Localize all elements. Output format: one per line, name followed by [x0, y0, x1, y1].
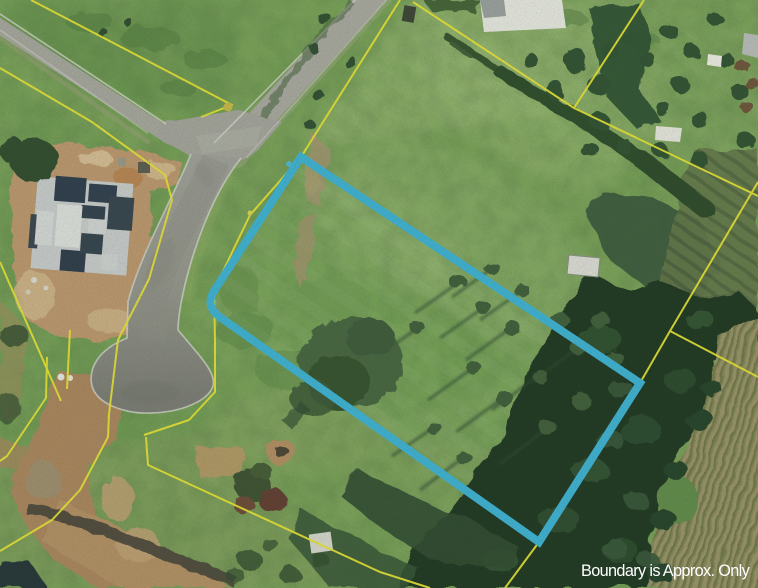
svg-text:Boundary is Approx. Only: Boundary is Approx. Only [581, 562, 751, 580]
